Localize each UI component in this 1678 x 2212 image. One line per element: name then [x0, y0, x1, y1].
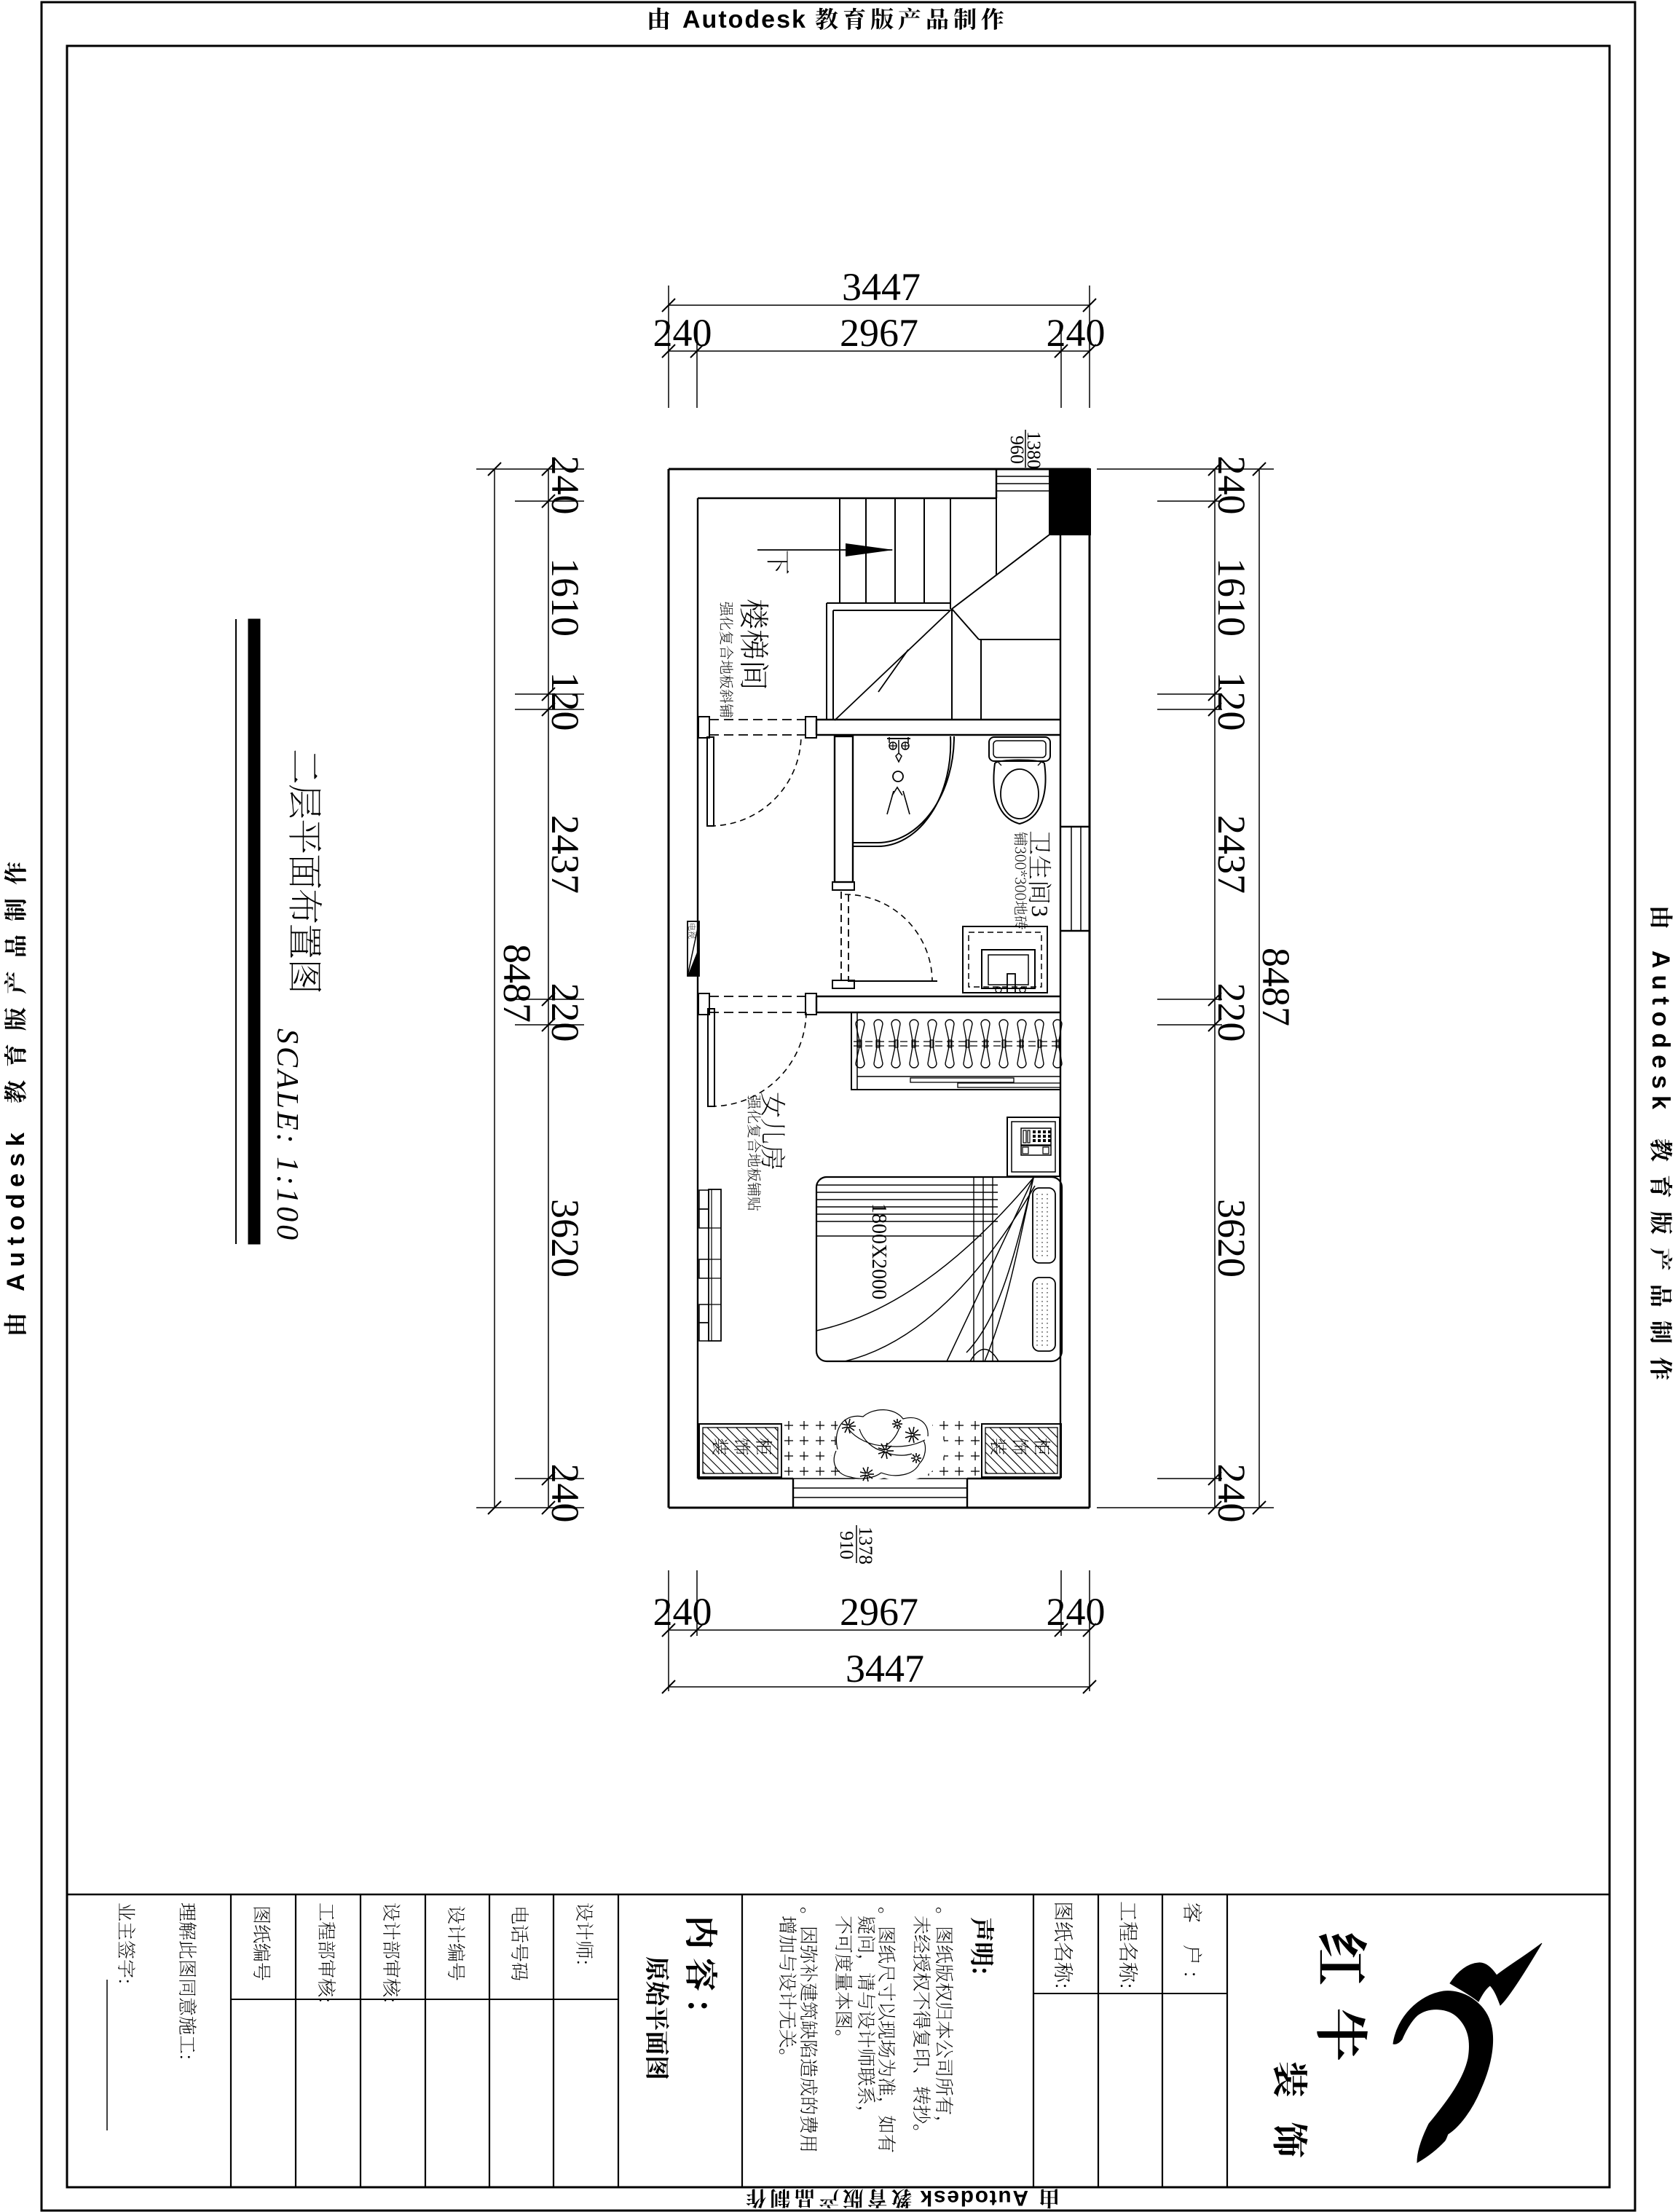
svg-text:240: 240 — [1047, 1590, 1106, 1634]
svg-text:220: 220 — [543, 983, 587, 1042]
svg-text:2967: 2967 — [840, 311, 918, 355]
svg-text:3: 3 — [1027, 905, 1053, 917]
svg-text:Autodesk: Autodesk — [919, 2186, 1028, 2210]
svg-text:2437: 2437 — [543, 815, 587, 894]
svg-text:1610: 1610 — [1210, 558, 1253, 637]
svg-text:Autodesk: Autodesk — [1647, 950, 1674, 1116]
svg-text:1378: 1378 — [855, 1527, 876, 1564]
svg-text:Autodesk: Autodesk — [682, 6, 807, 34]
svg-text:1800X2000: 1800X2000 — [867, 1203, 890, 1299]
svg-text:240: 240 — [653, 1590, 712, 1634]
svg-text:240: 240 — [1047, 311, 1106, 355]
svg-text:8487: 8487 — [1254, 948, 1298, 1026]
svg-text:3447: 3447 — [842, 265, 921, 309]
svg-text:240: 240 — [1210, 1464, 1253, 1523]
svg-text:240: 240 — [543, 1464, 587, 1523]
svg-text:240: 240 — [543, 456, 587, 515]
svg-text:240: 240 — [1210, 456, 1253, 515]
svg-text:2437: 2437 — [1210, 815, 1253, 894]
svg-text:2967: 2967 — [840, 1590, 918, 1634]
svg-text:220: 220 — [1210, 983, 1253, 1042]
svg-text:3620: 3620 — [1210, 1199, 1253, 1278]
svg-text:120: 120 — [543, 672, 587, 731]
svg-text:Autodesk: Autodesk — [2, 1126, 30, 1291]
svg-text:120: 120 — [1210, 672, 1253, 731]
svg-text:1610: 1610 — [543, 558, 587, 637]
svg-text:3447: 3447 — [846, 1647, 924, 1691]
svg-text:960: 960 — [1007, 436, 1028, 464]
svg-text:8487: 8487 — [495, 944, 539, 1023]
svg-text:910: 910 — [836, 1531, 857, 1559]
svg-text:SCALE: 1:100: SCALE: 1:100 — [270, 1028, 304, 1243]
svg-text:3620: 3620 — [543, 1199, 587, 1278]
svg-text:240: 240 — [653, 311, 712, 355]
